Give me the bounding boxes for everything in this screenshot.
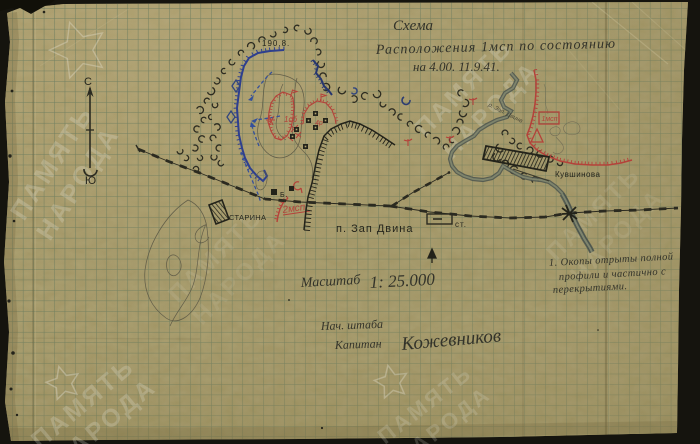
svg-text:Капитан: Капитан [334,336,382,352]
svg-text:1: 25.000: 1: 25.000 [369,270,436,292]
svg-text:Нач. штаба: Нач. штаба [320,317,384,333]
svg-text:1сб: 1сб [284,115,297,124]
svg-text:ст.: ст. [455,220,467,229]
svg-text:C: C [84,76,93,88]
svg-text:СТАРИНА: СТАРИНА [229,213,267,222]
svg-text:п. Зап Двина: п. Зап Двина [336,223,413,235]
svg-text:Кувшинова: Кувшинова [555,170,601,179]
svg-text:190,8.: 190,8. [262,39,290,48]
svg-text:Схема: Схема [393,18,433,34]
svg-text:1мсп: 1мсп [542,116,558,123]
svg-text:Б.: Б. [280,192,289,199]
svg-text:Ю: Ю [85,175,97,187]
svg-text:на 4.00. 11.9.41.: на 4.00. 11.9.41. [413,59,500,74]
